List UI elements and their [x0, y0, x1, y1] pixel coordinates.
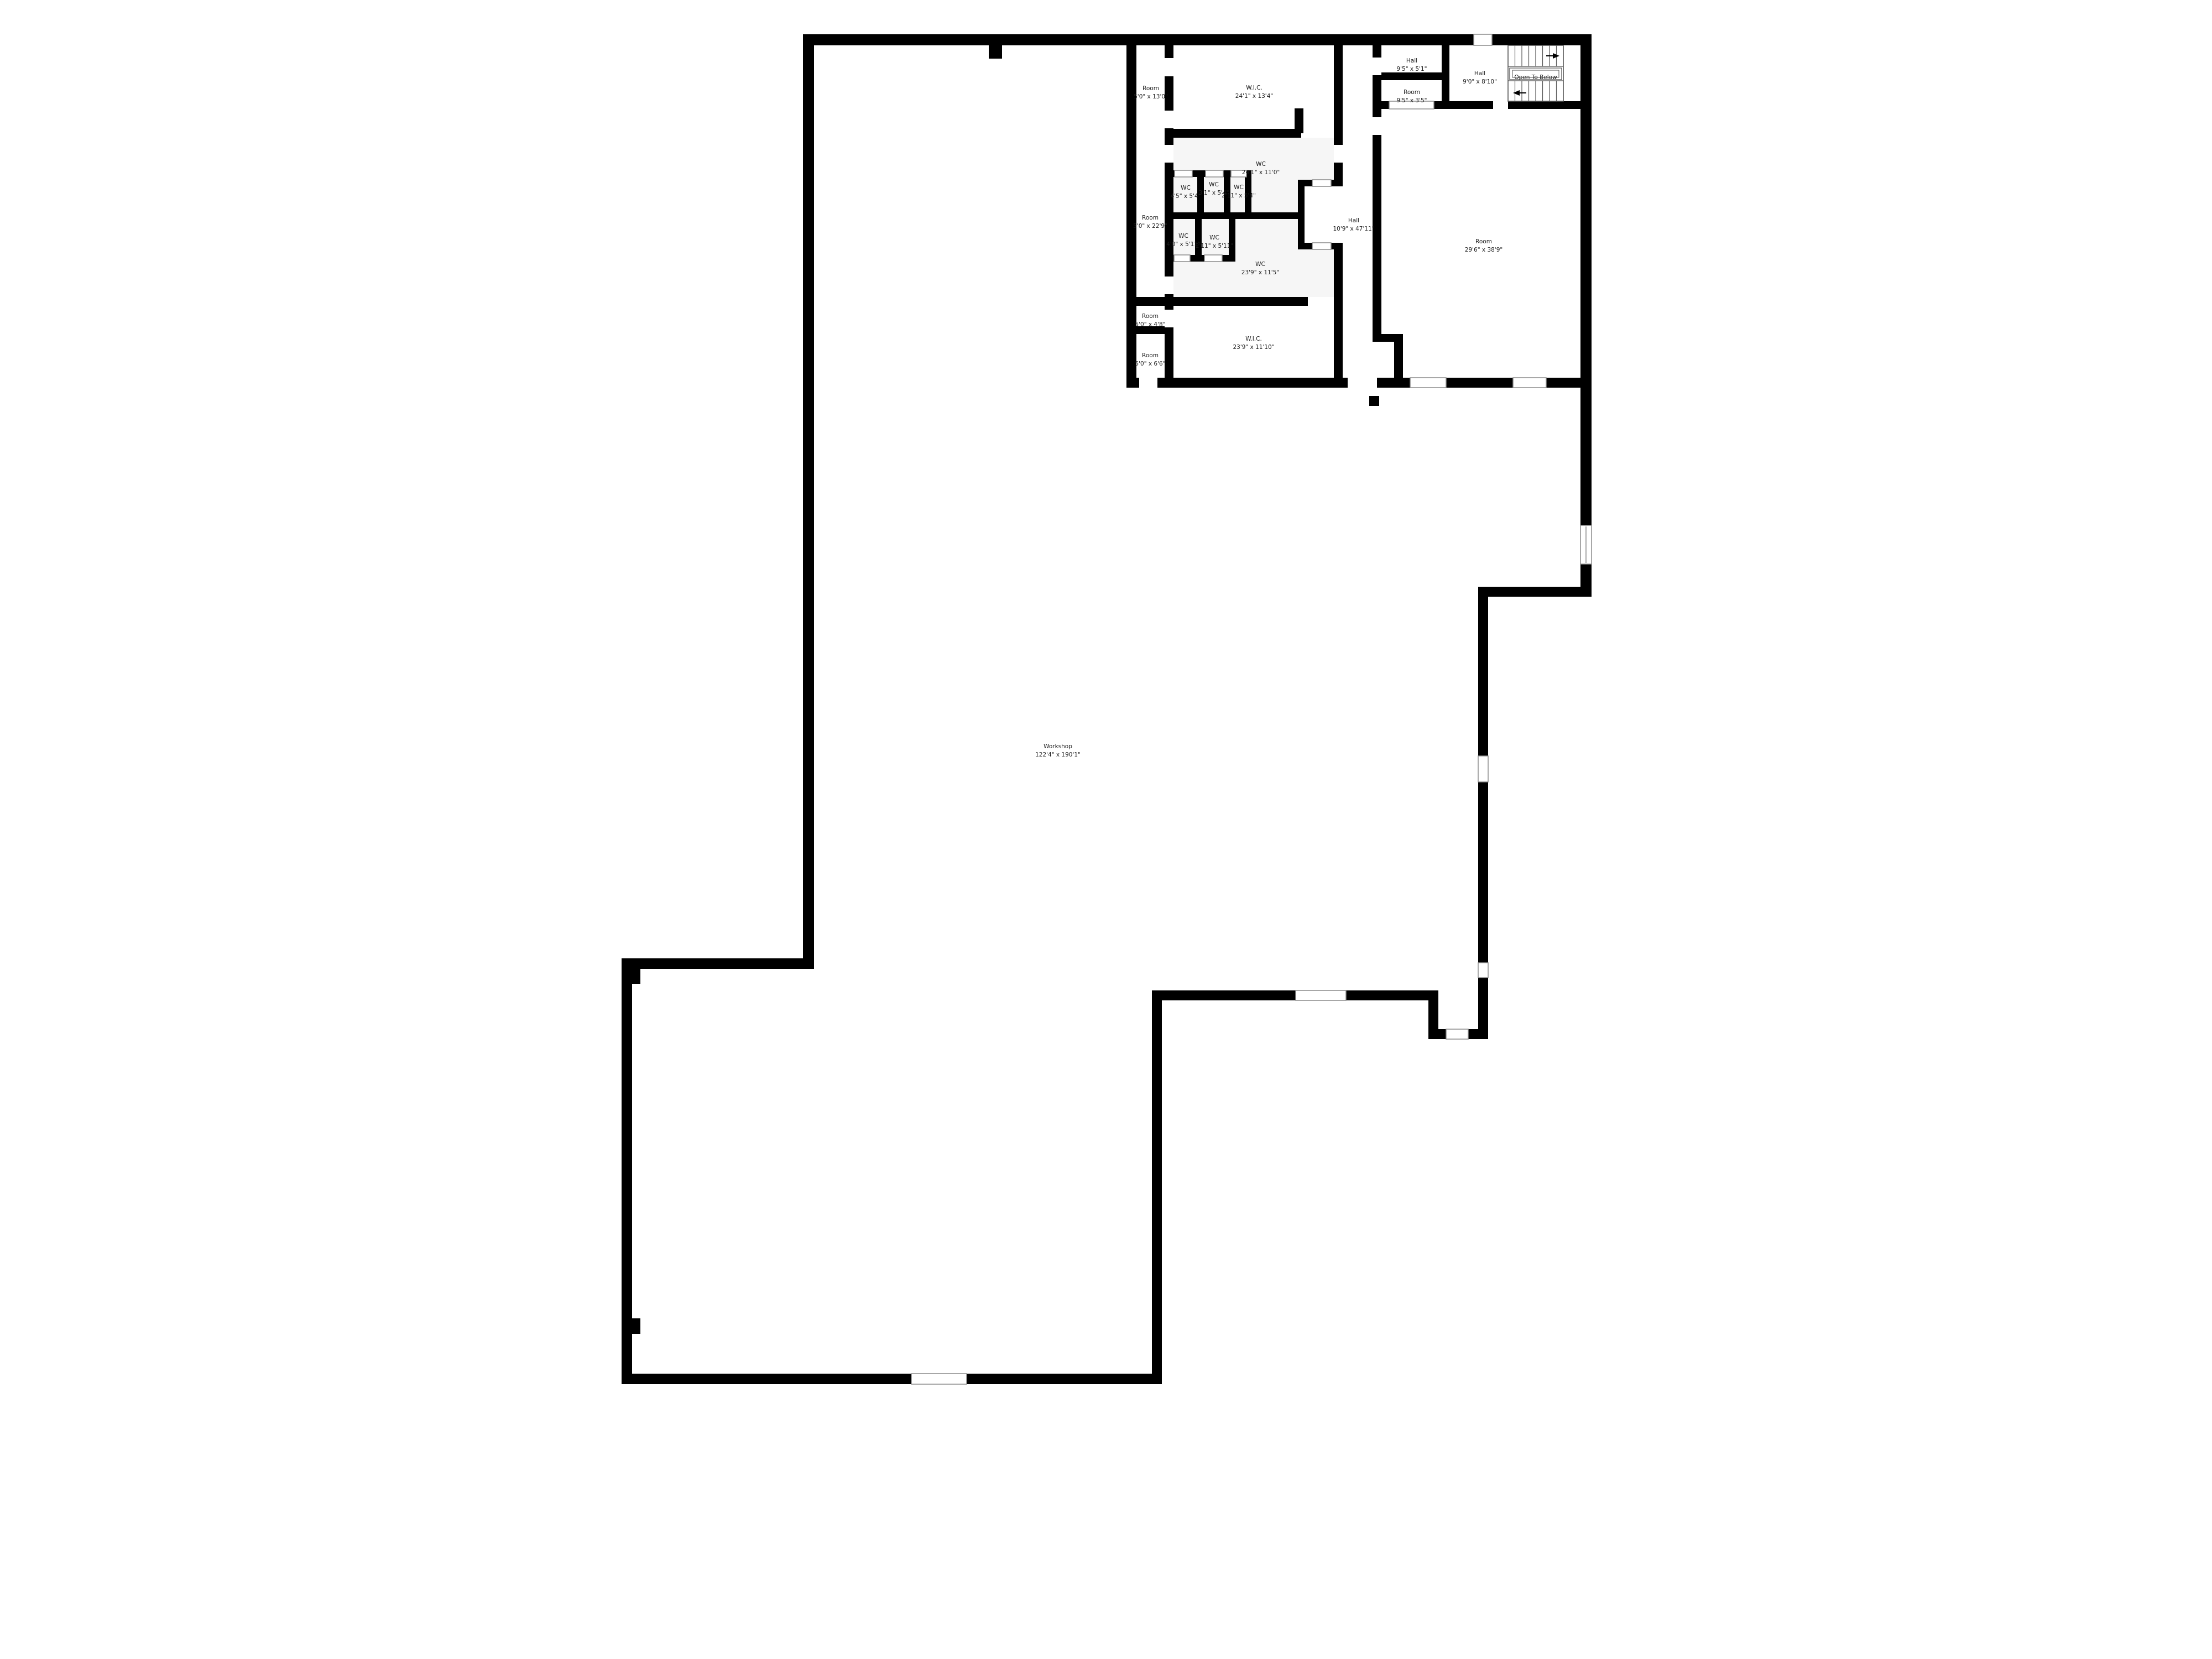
room-dimensions: 5'0" x 6'6": [1135, 361, 1165, 367]
wall: [1229, 219, 1235, 255]
room-name: Hall: [1406, 58, 1417, 64]
room-name: Room: [1142, 352, 1159, 359]
wall: [1152, 990, 1438, 1000]
door-opening: [1165, 310, 1173, 327]
wall: [1165, 129, 1301, 138]
room-name: WC: [1255, 261, 1265, 268]
wall: [1478, 587, 1592, 597]
wall: [1126, 297, 1308, 306]
window-opening: [1410, 378, 1446, 388]
wall: [803, 34, 1592, 45]
window-opening: [1312, 243, 1331, 249]
wall: [1165, 212, 1298, 219]
door-opening: [1139, 378, 1157, 388]
wall: [1373, 72, 1449, 80]
room-dimensions: 5'0" x 13'0": [1134, 93, 1168, 100]
room-name: Room: [1142, 313, 1159, 320]
wall: [1373, 334, 1403, 342]
room-dimensions: 23'9" x 11'5": [1241, 269, 1279, 276]
room-dimensions: 10'9" x 47'11": [1333, 226, 1374, 232]
room-name: WC: [1234, 184, 1244, 191]
window-opening: [1204, 255, 1222, 262]
window-opening: [1175, 170, 1192, 177]
door-opening: [1334, 145, 1343, 163]
wall: [1394, 342, 1403, 383]
wall: [622, 958, 814, 969]
window-opening: [1174, 255, 1190, 262]
room-dimensions: 23'9" x 11'10": [1233, 344, 1274, 351]
room-name: WC: [1209, 234, 1219, 241]
room-dimensions: 9'5" x 5'1": [1396, 66, 1427, 72]
room-name: Hall: [1474, 70, 1485, 77]
room-name: WC: [1209, 181, 1219, 188]
door-opening: [1165, 276, 1173, 294]
room-name: Room: [1142, 215, 1159, 221]
window-opening: [1312, 180, 1331, 186]
window-opening: [1446, 1029, 1468, 1039]
room-name: WC: [1256, 161, 1266, 168]
room-dimensions: 2'11" x 5'4": [1222, 192, 1256, 199]
wall: [1334, 249, 1343, 383]
wall: [1580, 34, 1592, 597]
door-opening: [1493, 101, 1508, 109]
room-dimensions: 9'5" x 3'5": [1396, 97, 1427, 104]
door-opening: [1165, 111, 1173, 128]
wall: [1373, 45, 1381, 341]
room-name: Hall: [1348, 217, 1359, 224]
room-dimensions: 9'0" x 8'10": [1463, 79, 1497, 85]
room-dimensions: 4'5" x 5'4": [1170, 193, 1201, 200]
room-dimensions: 29'6" x 38'9": [1465, 247, 1503, 253]
window-opening: [1478, 756, 1488, 782]
room-name: Workshop: [1044, 743, 1072, 750]
room-name: WC: [1181, 185, 1191, 191]
wall: [1298, 180, 1305, 249]
room-name: Room: [1475, 238, 1492, 245]
window-opening: [1478, 963, 1488, 978]
plan-background: [0, 0, 2212, 1659]
room-name: Room: [1404, 89, 1420, 96]
window-opening: [1296, 990, 1346, 1000]
wall: [622, 1374, 1162, 1384]
pillar: [623, 1318, 640, 1334]
room-dimensions: 5'0" x 22'9": [1133, 223, 1167, 229]
room-dimensions: 24'1" x 13'4": [1235, 93, 1273, 100]
window-opening: [1513, 378, 1546, 388]
room-dimensions: 122'4" x 190'1": [1035, 752, 1081, 758]
door-opening: [1165, 58, 1173, 76]
open-to-below-label: Open To Below: [1514, 74, 1557, 81]
wall: [1334, 45, 1343, 184]
door-opening: [1165, 145, 1173, 163]
wall: [1152, 990, 1162, 1384]
window-opening: [911, 1374, 967, 1384]
floor-plan: Open To Below Room5'0" x 13'0"W.I.C.24'1…: [0, 0, 2212, 1659]
wall: [1442, 45, 1449, 109]
door-opening: [1373, 58, 1381, 75]
wall: [803, 34, 814, 969]
door-opening: [1348, 378, 1377, 388]
room-dimensions: 5'0" x 4'8": [1135, 321, 1165, 328]
window-opening: [1206, 170, 1223, 177]
window-opening: [1474, 34, 1492, 45]
door-opening: [1373, 117, 1381, 135]
room-name: WC: [1178, 233, 1188, 239]
pillar: [1369, 396, 1379, 406]
room-name: W.I.C.: [1245, 336, 1262, 342]
wall: [1295, 108, 1303, 133]
room-dimensions: 24'1" x 11'0": [1242, 169, 1280, 176]
room-name: W.I.C.: [1246, 85, 1262, 91]
room-dimensions: 2'11" x 5'11": [1196, 243, 1233, 249]
pillar: [622, 958, 640, 984]
pillar: [989, 45, 1002, 59]
room-name: Room: [1142, 85, 1159, 92]
wall: [1195, 219, 1202, 255]
